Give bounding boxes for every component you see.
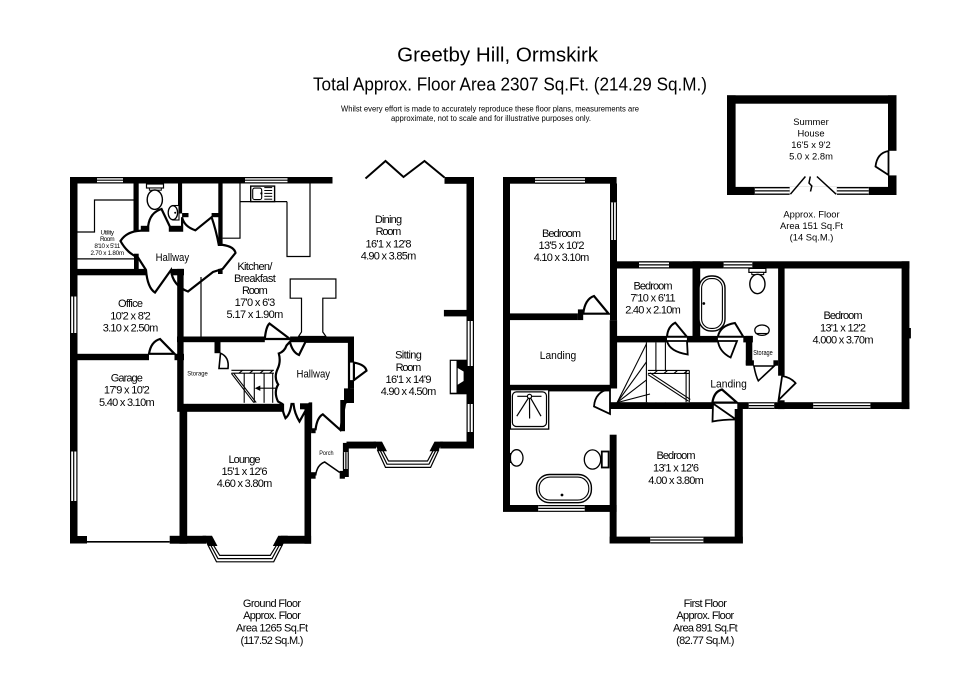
- svg-text:3.10 x 2.50m: 3.10 x 2.50m: [103, 323, 159, 335]
- svg-text:10'2 x 8'2: 10'2 x 8'2: [110, 310, 151, 322]
- svg-text:Storage: Storage: [187, 371, 208, 378]
- svg-text:Landing: Landing: [710, 378, 747, 390]
- svg-text:Hallway: Hallway: [156, 252, 190, 264]
- svg-text:Area 891 Sq.Ft: Area 891 Sq.Ft: [673, 623, 738, 635]
- svg-text:Garage: Garage: [111, 372, 143, 384]
- svg-text:5.40 x 3.10m: 5.40 x 3.10m: [99, 397, 155, 409]
- svg-text:Office: Office: [118, 298, 143, 310]
- svg-text:16'1 x 12'8: 16'1 x 12'8: [366, 238, 412, 250]
- svg-text:Bedroom: Bedroom: [656, 450, 695, 462]
- svg-text:4.00 x 3.80m: 4.00 x 3.80m: [648, 475, 704, 487]
- svg-text:First Floor: First Floor: [684, 598, 728, 610]
- svg-text:2.40 x 2.10m: 2.40 x 2.10m: [625, 305, 681, 317]
- svg-text:Bedroom: Bedroom: [823, 310, 862, 322]
- svg-text:Approx. Floor: Approx. Floor: [243, 610, 301, 622]
- svg-text:(117.52 Sq.M.): (117.52 Sq.M.): [241, 635, 304, 647]
- svg-text:2.70 x 1.80m: 2.70 x 1.80m: [91, 250, 125, 257]
- svg-text:Breakfast: Breakfast: [234, 273, 276, 285]
- svg-text:Area 151 Sq.Ft: Area 151 Sq.Ft: [780, 220, 843, 231]
- svg-text:Bedroom: Bedroom: [542, 228, 581, 240]
- svg-text:16'1 x 14'9: 16'1 x 14'9: [386, 374, 432, 386]
- svg-text:13'1 x 12'6: 13'1 x 12'6: [653, 463, 699, 475]
- svg-text:Summer: Summer: [793, 116, 828, 127]
- svg-text:15'1 x 12'6: 15'1 x 12'6: [222, 466, 268, 478]
- svg-text:16'5 x 9'2: 16'5 x 9'2: [791, 139, 831, 150]
- svg-text:Kitchen/: Kitchen/: [237, 261, 273, 273]
- svg-text:17'9 x 10'2: 17'9 x 10'2: [104, 385, 150, 397]
- svg-text:4.60 x 3.80m: 4.60 x 3.80m: [217, 478, 273, 490]
- svg-text:Total Approx. Floor Area 2307: Total Approx. Floor Area 2307 Sq.Ft. (21…: [313, 74, 707, 94]
- svg-text:Ground Floor: Ground Floor: [243, 598, 302, 610]
- svg-text:Lounge: Lounge: [228, 454, 260, 466]
- svg-text:Room: Room: [396, 362, 422, 374]
- svg-text:Porch: Porch: [319, 450, 334, 457]
- svg-text:13'5 x 10'2: 13'5 x 10'2: [539, 240, 585, 252]
- svg-text:5.17 x 1.90m: 5.17 x 1.90m: [227, 309, 284, 321]
- svg-text:7'10 x 6'11: 7'10 x 6'11: [630, 293, 675, 305]
- svg-text:House: House: [797, 127, 824, 138]
- svg-text:Greetby Hill, Ormskirk: Greetby Hill, Ormskirk: [397, 45, 599, 67]
- svg-text:Area 1265 Sq.Ft: Area 1265 Sq.Ft: [236, 623, 308, 635]
- svg-text:(82.77 Sq.M.): (82.77 Sq.M.): [676, 635, 734, 647]
- svg-text:4.90 x 3.85m: 4.90 x 3.85m: [361, 251, 417, 263]
- svg-text:Landing: Landing: [540, 350, 577, 362]
- svg-text:Approx. Floor: Approx. Floor: [676, 610, 734, 622]
- svg-text:Approx. Floor: Approx. Floor: [783, 208, 839, 219]
- svg-text:Sitting: Sitting: [395, 350, 422, 362]
- svg-text:Dining: Dining: [375, 214, 402, 226]
- svg-text:Bedroom: Bedroom: [633, 280, 672, 292]
- svg-text:4.000 x 3.70m: 4.000 x 3.70m: [813, 335, 874, 347]
- svg-text:Room: Room: [100, 236, 115, 243]
- svg-text:Whilst every effort is made to: Whilst every effort is made to accuratel…: [341, 105, 639, 114]
- svg-text:17'0 x 6'3: 17'0 x 6'3: [235, 297, 276, 309]
- svg-text:4.10 x 3.10m: 4.10 x 3.10m: [534, 252, 590, 264]
- svg-text:Room: Room: [376, 226, 402, 238]
- svg-text:(14 Sq.M.): (14 Sq.M.): [790, 231, 834, 242]
- svg-text:Room: Room: [242, 285, 268, 297]
- svg-text:5.0 x 2.8m: 5.0 x 2.8m: [789, 151, 833, 162]
- svg-text:4.90 x 4.50m: 4.90 x 4.50m: [381, 386, 437, 398]
- svg-text:Hallway: Hallway: [297, 369, 331, 381]
- svg-text:Storage: Storage: [753, 350, 773, 357]
- svg-text:approximate, not to scale and: approximate, not to scale and for illust…: [391, 114, 591, 123]
- svg-text:13'1 x 12'2: 13'1 x 12'2: [820, 322, 866, 334]
